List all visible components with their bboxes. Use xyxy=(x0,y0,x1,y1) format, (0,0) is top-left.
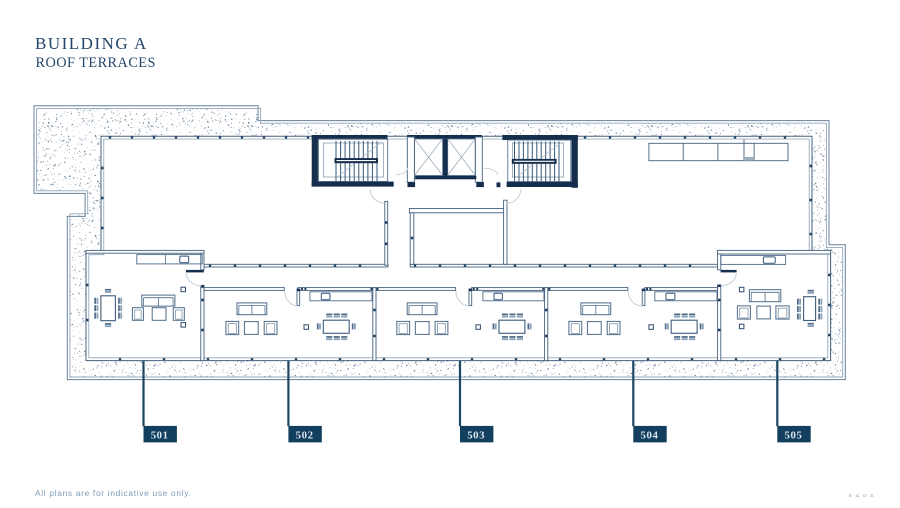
svg-text:503: 503 xyxy=(467,429,485,441)
svg-text:501: 501 xyxy=(151,429,169,441)
svg-text:502: 502 xyxy=(296,429,314,441)
svg-text:505: 505 xyxy=(785,429,803,441)
svg-text:504: 504 xyxy=(641,429,659,441)
